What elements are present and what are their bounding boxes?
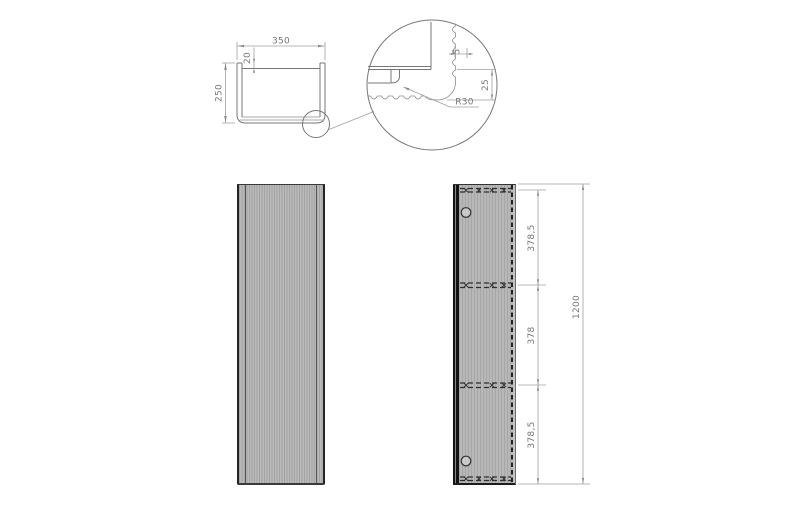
- side-view-annotations: 378,5 378 378,5 1200: [460, 184, 590, 484]
- detail-thickness-label: 25: [481, 79, 491, 91]
- side-section-bottom-label: 378,5: [527, 421, 537, 448]
- side-section-middle-label: 378: [527, 326, 537, 344]
- plan-width-label: 350: [272, 37, 290, 47]
- detail-circle: [367, 20, 497, 150]
- plan-depth-label: 250: [215, 84, 225, 102]
- detail-structure-lines: [368, 22, 431, 83]
- detail-view: 5 25 R30: [367, 20, 497, 150]
- detail-radius-label: R30: [455, 98, 474, 108]
- side-dimension-arrows: [537, 184, 584, 484]
- side-dowel-hole-top: [461, 208, 471, 218]
- plan-outline: [237, 63, 325, 123]
- detail-flute-depth-label: 5: [453, 48, 463, 54]
- technical-drawing: 350 20 250 5 25 R30 378,5 378: [0, 0, 800, 513]
- drawing-linework: 350 20 250 5 25 R30 378,5 378: [0, 0, 800, 513]
- detail-dimension-lines: [404, 46, 497, 107]
- detail-fluted-profile: [369, 24, 456, 100]
- side-section-top-label: 378,5: [527, 224, 537, 251]
- plan-view: 350 20 250: [215, 37, 375, 138]
- side-overall-height-label: 1200: [572, 295, 582, 319]
- plan-back-inset-label: 20: [243, 52, 253, 64]
- plan-front-panel-lines: [240, 117, 323, 120]
- side-fixing-rows: [460, 189, 511, 481]
- side-dowel-hole-bottom: [461, 456, 471, 466]
- side-fixing-cross-marks: [464, 188, 506, 481]
- plan-dimension-arrows: [224, 45, 324, 123]
- detail-leader-line: [329, 112, 374, 130]
- plan-detail-marker-circle: [303, 111, 330, 138]
